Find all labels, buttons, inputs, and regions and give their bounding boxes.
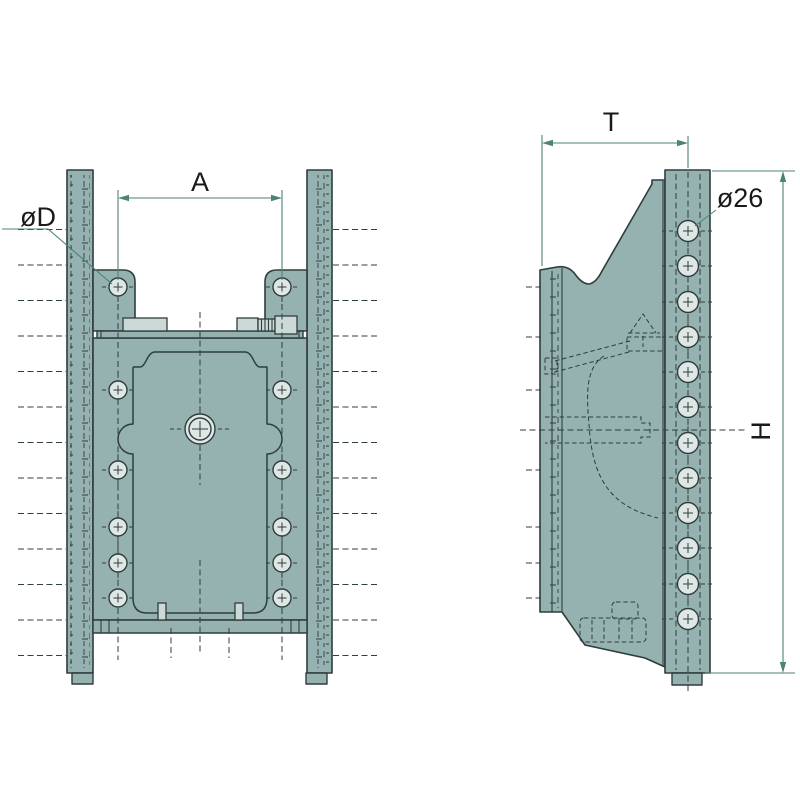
flange-hole-rows [526,287,541,598]
technical-drawing-page: A øD [0,0,800,800]
left-rail-hidden-holes [70,175,90,668]
dimension-h: H [705,171,795,673]
dimension-a-label: A [191,167,209,197]
dimension-h-label: H [746,421,776,441]
right-rail-foot [306,673,327,684]
right-tab [235,603,243,620]
bolt-nut [275,316,297,334]
left-clamp-pad [123,318,167,331]
side-view: T H ø26 [520,107,795,694]
dimension-t-label: T [603,107,620,137]
left-tab [158,603,166,620]
side-rail-foot [672,673,702,685]
diameter-26-label: ø26 [717,183,764,213]
front-view: A øD [2,167,380,684]
dimension-a: A [118,167,282,280]
left-rail-foot [72,673,93,684]
flange-hidden-holes [542,274,560,608]
coupling-mounting-plate-drawing: A øD [0,0,800,800]
diameter-d-label: øD [20,202,56,232]
right-clamp-pad [237,318,258,331]
right-rail-hidden-holes [310,175,329,668]
